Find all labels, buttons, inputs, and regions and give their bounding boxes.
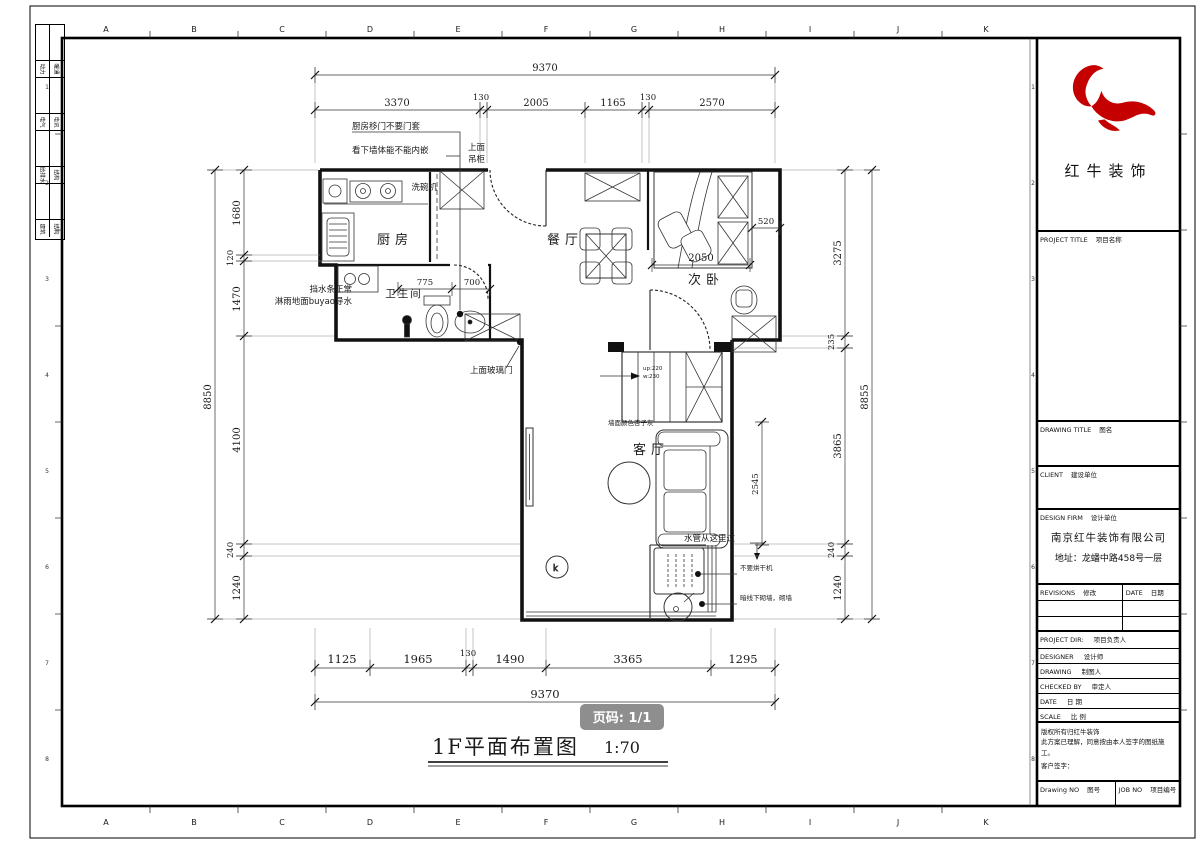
- bathroom-fixtures: [338, 266, 485, 337]
- dim-label: 2545: [751, 473, 761, 495]
- job-no-en: JOB NO: [1119, 786, 1143, 794]
- svg-text:2: 2: [1031, 180, 1035, 187]
- signoff-label: 建筑: [38, 223, 46, 234]
- dim-label: 235: [827, 334, 837, 350]
- svg-text:4: 4: [1031, 372, 1035, 379]
- note-dishwasher: 洗碗机: [411, 182, 437, 193]
- room-label-kitchen: 厨房: [377, 232, 413, 248]
- project-title-cn: 项目名称: [1096, 236, 1122, 244]
- svg-text:B: B: [191, 25, 197, 34]
- page-badge: 页码: 1/1: [580, 704, 664, 730]
- dim-label: 240: [827, 542, 837, 558]
- note-wall-embed: 看下墙体能不能内嵌: [352, 145, 429, 156]
- svg-text:C: C: [279, 25, 285, 34]
- drawing-title-text: 1F平面布置图: [432, 735, 579, 759]
- svg-text:4: 4: [45, 372, 49, 379]
- svg-text:3: 3: [45, 276, 49, 283]
- svg-text:F: F: [544, 818, 549, 827]
- note-wall-line: 暗线下砌墙，砌墙: [740, 593, 793, 602]
- drawing-title-cn: 图名: [1099, 426, 1112, 434]
- room-label-bedroom: 次卧: [688, 272, 724, 288]
- dimensions-left: 8850 1680 120 1470 4100 240 1240: [203, 166, 520, 623]
- svg-text:K: K: [983, 25, 989, 34]
- plant-label: k: [553, 564, 558, 574]
- dim-label: 700: [464, 278, 480, 288]
- dim-label: 1965: [403, 652, 432, 666]
- svg-text:F: F: [544, 25, 549, 34]
- drawing-sheet: A B C D E F G H I J K A B C D E F G H I …: [0, 0, 1200, 845]
- svg-text:D: D: [367, 818, 373, 827]
- note-cabinet-1: 上面: [468, 143, 486, 153]
- signoff-label: 结构: [53, 223, 61, 234]
- dim-label: 8855: [860, 384, 871, 409]
- grid-numbers: 1 2 3 4 5 6 7 8 1 2 3 4 5 6 7 8: [45, 84, 1035, 763]
- copyright-line2: 此方案已理解，同意按由本人签字的图纸施工。: [1041, 737, 1176, 758]
- checked-by-en: CHECKED BY: [1040, 683, 1082, 691]
- revisions-cn: 修改: [1083, 589, 1096, 597]
- bedroom-furniture: [654, 172, 757, 314]
- living-furniture: k: [526, 428, 728, 578]
- dim-label: 2570: [699, 98, 724, 109]
- svg-text:7: 7: [1031, 660, 1035, 667]
- dim-label: 240: [226, 542, 236, 558]
- svg-text:8: 8: [45, 756, 49, 763]
- stairs-note-1: up:220: [643, 366, 663, 372]
- customer-sign-label: 客户签字：: [1041, 761, 1176, 771]
- signoff-label: 给排水: [39, 167, 47, 184]
- svg-text:6: 6: [45, 564, 49, 571]
- svg-text:3: 3: [1031, 276, 1035, 283]
- design-firm-en: DESIGN FIRM: [1040, 514, 1083, 522]
- dim-label: 120: [226, 250, 236, 266]
- project-title-en: PROJECT TITLE: [1040, 236, 1088, 244]
- note-kitchen-door: 厨房移门不要门套: [352, 121, 421, 132]
- dim-label: 1125: [327, 652, 356, 666]
- drawing-title: 1F平面布置图 1:70: [428, 735, 668, 766]
- dim-label: 9370: [530, 687, 559, 701]
- svg-text:E: E: [455, 818, 460, 827]
- svg-text:J: J: [896, 25, 899, 34]
- svg-text:J: J: [896, 818, 899, 827]
- dim-label: 8850: [203, 384, 214, 409]
- signoff-label: 电气: [38, 116, 46, 127]
- signoff-label: 动力: [38, 63, 46, 74]
- logo-text: 红牛装饰: [1037, 160, 1180, 181]
- svg-text:B: B: [191, 818, 197, 827]
- svg-text:5: 5: [1031, 468, 1035, 475]
- note-water-bar: 挡水条正常: [309, 284, 352, 295]
- copyright-section: 版权所有归红牛装饰 此方案已理解，同意按由本人签字的图纸施工。 客户签字：: [1037, 721, 1180, 780]
- stairs: up:220 w:230: [600, 352, 722, 422]
- stairs-note-2: w:230: [643, 374, 660, 380]
- dim-label: 3865: [833, 433, 844, 458]
- bedroom-door: [650, 290, 710, 350]
- dim-label: 2005: [523, 98, 548, 109]
- dim-label: 1470: [232, 286, 243, 311]
- dim-label: 130: [473, 93, 489, 103]
- page-badge-text: 页码: 1/1: [593, 711, 652, 726]
- dim-label: 3370: [384, 98, 409, 109]
- rednow-bull-logo: [1054, 56, 1164, 152]
- revisions-section: REVISIONS修改 DATE日期: [1037, 583, 1180, 630]
- note-glass-door: 上面玻璃门: [470, 365, 513, 376]
- design-firm-section: DESIGN FIRM设计单位 南京红牛装饰有限公司 地址：龙蟠中路458号一层: [1037, 508, 1180, 583]
- dim-label: 4100: [232, 427, 243, 452]
- date-en: DATE: [1040, 698, 1057, 706]
- signoff-strip: 动力暖通 电气电讯 给排水结构 建筑结构: [35, 24, 65, 240]
- note-no-dryer: 不要烘干机: [740, 563, 773, 572]
- dim-label: 1240: [833, 575, 844, 600]
- svg-text:6: 6: [1031, 564, 1035, 571]
- svg-text:G: G: [631, 25, 637, 34]
- date-cn: 日 期: [1067, 698, 1082, 706]
- floor-plan: up:220 w:230 k 厨房: [203, 63, 880, 710]
- grid-letters-top: A B C D E F G H I J K: [103, 25, 989, 34]
- drawing-cn: 制图人: [1082, 668, 1102, 676]
- drawing-title-en: DRAWING TITLE: [1040, 426, 1091, 434]
- dim-label: 1165: [600, 98, 625, 109]
- dim-label: 130: [460, 649, 476, 659]
- designer-en: DESIGNER: [1040, 653, 1074, 661]
- staff-section: PROJECT DIR:项目负责人 DESIGNER设计师 DRAWING制图人…: [1037, 630, 1180, 721]
- project-dir-cn: 项目负责人: [1094, 636, 1127, 644]
- note-shower-floor: 淋雨地面buyao导水: [275, 296, 353, 307]
- project-dir-en: PROJECT DIR:: [1040, 636, 1084, 644]
- note-cabinet-2: 吊柜: [468, 154, 486, 165]
- dim-label: 520: [758, 217, 774, 227]
- signoff-label: 暖通: [53, 63, 61, 74]
- designer-cn: 设计师: [1084, 653, 1104, 661]
- drawing-scale-text: 1:70: [604, 738, 640, 757]
- svg-text:E: E: [455, 25, 460, 34]
- svg-text:A: A: [103, 818, 109, 827]
- copyright-line1: 版权所有归红牛装饰: [1041, 727, 1176, 737]
- svg-text:8: 8: [1031, 756, 1035, 763]
- drawing-title-section: DRAWING TITLE图名: [1037, 420, 1180, 465]
- drawing-no-cn: 图号: [1087, 786, 1100, 794]
- dim-label: 3275: [833, 240, 844, 265]
- dim-label: 775: [417, 278, 433, 288]
- client-cn: 建设单位: [1071, 471, 1097, 479]
- dim-label: 9370: [532, 63, 557, 74]
- signoff-label: 结构: [53, 169, 61, 180]
- svg-text:D: D: [367, 25, 373, 34]
- scale-en: SCALE: [1040, 713, 1061, 721]
- job-no-cn: 项目编号: [1150, 786, 1176, 794]
- client-en: CLIENT: [1040, 471, 1063, 479]
- logo-section: 红牛装饰: [1037, 38, 1180, 230]
- svg-text:I: I: [809, 25, 811, 34]
- dim-label: 1240: [232, 575, 243, 600]
- dining-set: [580, 228, 632, 284]
- dim-label: 3365: [613, 652, 642, 666]
- dim-label: 1490: [495, 652, 524, 666]
- firm-address: 地址：龙蟠中路458号一层: [1037, 551, 1180, 564]
- note-wall-color: 墙面颜色杏子灰: [608, 418, 654, 427]
- room-label-dining: 餐厅: [547, 232, 583, 248]
- grid-letters-bottom: A B C D E F G H I J K: [103, 818, 989, 827]
- design-firm-cn: 设计单位: [1091, 514, 1117, 522]
- svg-text:7: 7: [45, 660, 49, 667]
- title-block: 红牛装饰 PROJECT TITLE项目名称 DRAWING TITLE图名 C…: [1037, 38, 1180, 806]
- drawing-en: DRAWING: [1040, 668, 1072, 676]
- svg-text:1: 1: [1031, 84, 1035, 91]
- svg-text:5: 5: [45, 468, 49, 475]
- entry-door: [490, 170, 546, 226]
- revisions-en: REVISIONS: [1040, 589, 1075, 597]
- firm-name: 南京红牛装饰有限公司: [1037, 530, 1180, 545]
- dim-label: 2050: [688, 253, 713, 264]
- scale-cn: 比 例: [1071, 713, 1086, 721]
- plan-canvas: A B C D E F G H I J K A B C D E F G H I …: [0, 0, 1200, 845]
- note-pipe: 水管从这里过: [684, 533, 736, 544]
- drawing-no-section: Drawing NO图号 JOB NO项目编号: [1037, 780, 1180, 806]
- plan-annotations: 厨房移门不要门套 看下墙体能不能内嵌 上面 吊柜 洗碗机 挡水条正常 淋雨地面b…: [275, 121, 793, 607]
- svg-text:K: K: [983, 818, 989, 827]
- dim-label: 1295: [728, 652, 757, 666]
- svg-text:I: I: [809, 818, 811, 827]
- dimensions-bottom: 1125 1965 130 1490 3365 1295 9370: [311, 628, 779, 710]
- room-label-living: 客厅: [633, 442, 669, 458]
- svg-text:C: C: [279, 818, 285, 827]
- checked-by-cn: 审定人: [1092, 683, 1112, 691]
- dim-label: 130: [640, 93, 656, 103]
- drawing-no-en: Drawing NO: [1040, 786, 1079, 794]
- dim-label: 1680: [232, 200, 243, 225]
- rev-date-cn: 日期: [1151, 589, 1164, 597]
- rev-date-en: DATE: [1126, 589, 1143, 597]
- signoff-label: 电讯: [53, 116, 61, 127]
- project-title-section: PROJECT TITLE项目名称: [1037, 230, 1180, 420]
- client-section: CLIENT建设单位: [1037, 465, 1180, 508]
- svg-text:H: H: [719, 818, 725, 827]
- svg-text:A: A: [103, 25, 109, 34]
- interior-walls: [336, 170, 732, 352]
- svg-text:H: H: [719, 25, 725, 34]
- svg-text:G: G: [631, 818, 637, 827]
